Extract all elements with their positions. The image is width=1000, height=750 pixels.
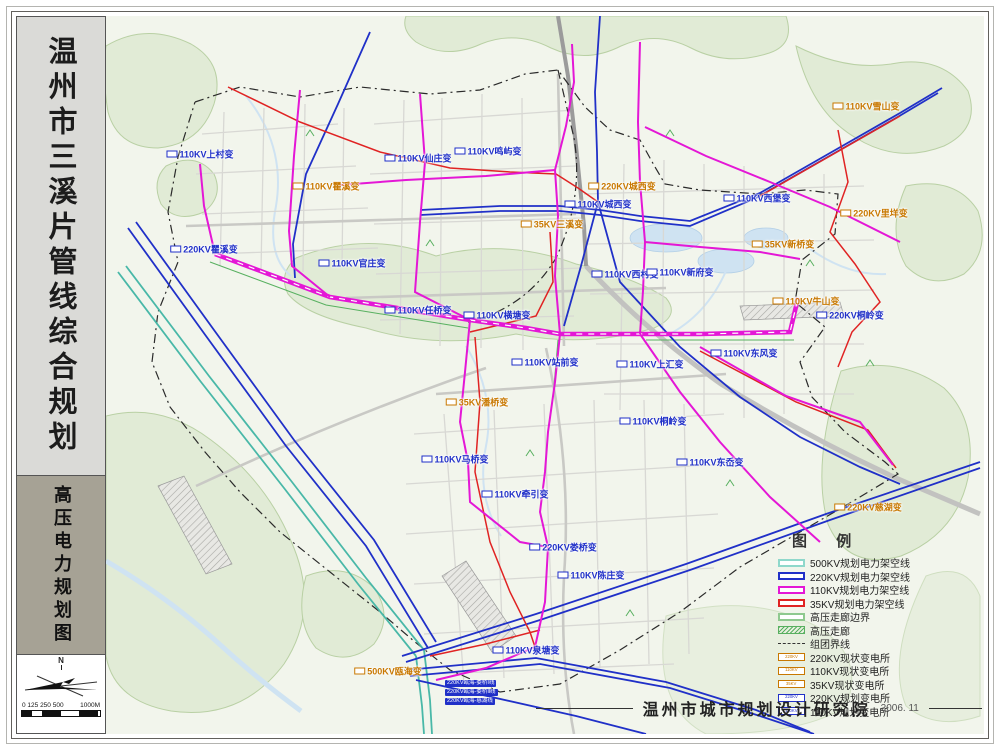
legend-swatch-tag: 110KV [785, 669, 797, 673]
substation-marker-icon [463, 312, 474, 319]
substation-name: 110KV城西变 [577, 198, 631, 211]
legend-item: 组团界线 [778, 637, 974, 651]
attribution-org: 温州市城市规划设计研究院 [643, 696, 871, 720]
substation-name: 110KV西堡变 [736, 192, 790, 205]
substation-name: 110KV鸣屿变 [467, 145, 521, 158]
substation-marker-icon [832, 103, 843, 110]
substation-label: 110KV上村变 [166, 148, 233, 161]
substation-name: 220KV娄桥变 [542, 541, 597, 554]
legend-swatch-icon: 110KV [778, 667, 805, 675]
substation-marker-icon [166, 151, 177, 158]
substation-label: 220KV娄桥变 [529, 541, 597, 554]
substation-marker-icon [710, 350, 721, 357]
substation-name: 110KV站前变 [524, 356, 578, 369]
substation-marker-icon [752, 241, 763, 248]
substation-label: 110KV泉塘变 [492, 644, 559, 657]
substation-label: 35KV三溪变 [521, 218, 584, 231]
legend-swatch-icon [778, 572, 805, 580]
legend-item: 35KV 35KV现状变电所 [778, 678, 974, 692]
scale-end-label: 1000M [80, 702, 100, 709]
substation-name: 110KV泉塘变 [505, 644, 559, 657]
legend-swatch-tag: 35KV [786, 682, 796, 686]
legend-swatch-icon [778, 626, 805, 634]
attribution-rule-left [536, 708, 633, 709]
sheet-subtitle-box: 高压电力规划图 [17, 476, 105, 655]
substation-marker-icon [588, 183, 599, 190]
legend-item: 110KV规划电力架空线 [778, 583, 974, 597]
legend-title: 图 例 [792, 530, 974, 551]
scale-ticks: 0 125 250 500 [22, 702, 64, 709]
sheet-subtitle: 高压电力规划图 [48, 485, 74, 646]
substation-name: 220KV瞿溪变 [183, 243, 238, 256]
legend-swatch-icon [778, 559, 805, 567]
substation-marker-icon [772, 298, 783, 305]
legend-swatch-icon [778, 586, 805, 594]
sheet-title: 温州市三溪片管线综合规划 [40, 36, 82, 456]
substation-marker-icon [529, 544, 540, 551]
substation-name: 110KV东岙变 [689, 456, 743, 469]
substation-label: 220KV桐岭变 [816, 309, 884, 322]
legend-item: 220KV规划电力架空线 [778, 570, 974, 584]
legend-swatch-icon: 220KV [778, 653, 805, 661]
substation-name: 110KV雪山变 [845, 100, 899, 113]
substation-marker-icon [723, 195, 734, 202]
substation-name: 110KV东风变 [723, 347, 777, 360]
substation-marker-icon [616, 361, 627, 368]
legend-swatch-icon [778, 599, 805, 607]
substation-label: 110KV雪山变 [832, 100, 899, 113]
attribution-date: 2006. 11 [881, 703, 919, 714]
substation-label: 110KV新府变 [646, 266, 713, 279]
line-name-tag: 220KV瓯海-娄桥Ⅱ线 [445, 689, 498, 696]
substation-label: 110KV横塘变 [463, 309, 530, 322]
legend-items: 500KV规划电力架空线 220KV规划电力架空线 110KV规划电力架空线 3… [778, 556, 974, 718]
substation-name: 220KV桐岭变 [829, 309, 884, 322]
substation-label: 110KV仙庄变 [384, 152, 451, 165]
map-area: 110KV上村变 110KV仙庄变 110KV瞿溪变 220KV瞿溪变 110K… [106, 16, 984, 734]
substation-label: 35KV潘桥变 [446, 396, 509, 409]
substation-name: 110KV横塘变 [476, 309, 530, 322]
substation-marker-icon [557, 572, 568, 579]
legend-item: 35KV规划电力架空线 [778, 597, 974, 611]
scale-bar-icon [21, 710, 101, 717]
compass-and-scale: N 0 125 250 500 1000M [17, 655, 105, 733]
substation-label: 220KV里垟变 [840, 207, 908, 220]
legend-swatch-icon: 35KV [778, 680, 805, 688]
substation-marker-icon [292, 183, 303, 190]
substation-name: 220KV慈湖变 [847, 501, 902, 514]
attribution: 温州市城市规划设计研究院 2006. 11 [536, 696, 982, 720]
line-name-tag: 220KV瓯海-娄桥Ⅰ线 [445, 680, 496, 687]
substation-label: 35KV新桥变 [752, 238, 815, 251]
substation-marker-icon [384, 155, 395, 162]
substation-marker-icon [676, 459, 687, 466]
substation-marker-icon [840, 210, 851, 217]
substation-marker-icon [318, 260, 329, 267]
substation-label: 110KV东风变 [710, 347, 777, 360]
substation-name: 110KV瞿溪变 [305, 180, 359, 193]
substation-label: 110KV鸣屿变 [454, 145, 521, 158]
substation-label: 110KV上汇变 [616, 358, 683, 371]
substation-marker-icon [492, 647, 503, 654]
legend-swatch-icon [778, 643, 805, 644]
substation-name: 110KV牵引变 [494, 488, 548, 501]
substation-name: 110KV官庄变 [331, 257, 385, 270]
substation-marker-icon [816, 312, 827, 319]
compass-icon [21, 670, 101, 700]
substation-name: 110KV上村变 [179, 148, 233, 161]
legend-item: 110KV 110KV现状变电所 [778, 664, 974, 678]
legend-swatch-icon [778, 613, 805, 621]
legend-item: 高压走廊 [778, 624, 974, 638]
substation-label: 500KV瓯海变 [354, 665, 422, 678]
substation-label: 110KV牵引变 [481, 488, 548, 501]
substation-marker-icon [511, 359, 522, 366]
line-name-tag: 220KV瓯海-慈湖线 [445, 698, 495, 705]
substation-name: 110KV马桥变 [434, 453, 488, 466]
north-label: N [58, 657, 64, 665]
substation-name: 110KV仙庄变 [397, 152, 451, 165]
legend-item: 220KV 220KV现状变电所 [778, 651, 974, 665]
substation-marker-icon [834, 504, 845, 511]
substation-marker-icon [170, 246, 181, 253]
substation-marker-icon [521, 221, 532, 228]
substation-label: 110KV陈庄变 [557, 569, 624, 582]
substation-marker-icon [564, 201, 575, 208]
legend-item: 高压走廊边界 [778, 610, 974, 624]
substation-label: 220KV慈湖变 [834, 501, 902, 514]
legend-item: 500KV规划电力架空线 [778, 556, 974, 570]
substation-name: 110KV桐岭变 [632, 415, 686, 428]
substation-label: 110KV马桥变 [421, 453, 488, 466]
substation-label: 110KV官庄变 [318, 257, 385, 270]
substation-name: 110KV新府变 [659, 266, 713, 279]
substation-label: 110KV站前变 [511, 356, 578, 369]
substation-marker-icon [421, 456, 432, 463]
substation-name: 110KV任桥变 [397, 304, 451, 317]
substation-marker-icon [354, 668, 365, 675]
substation-label: 220KV城西变 [588, 180, 656, 193]
substation-label: 110KV瞿溪变 [292, 180, 359, 193]
substation-name: 110KV上汇变 [629, 358, 683, 371]
substation-marker-icon [454, 148, 465, 155]
substation-label: 110KV牛山变 [772, 295, 839, 308]
legend: 图 例 500KV规划电力架空线 220KV规划电力架空线 110KV规划电力架… [778, 530, 974, 718]
title-panel: 温州市三溪片管线综合规划 高压电力规划图 N 0 125 250 500 100… [16, 16, 106, 734]
scale-labels: 0 125 250 500 1000M [22, 702, 100, 709]
plan-sheet: 温州市三溪片管线综合规划 高压电力规划图 N 0 125 250 500 100… [0, 0, 1000, 750]
substation-name: 500KV瓯海变 [367, 665, 422, 678]
substation-marker-icon [446, 399, 457, 406]
substation-name: 35KV新桥变 [765, 238, 815, 251]
sheet-title-box: 温州市三溪片管线综合规划 [17, 17, 105, 476]
substation-label: 110KV桐岭变 [619, 415, 686, 428]
substation-marker-icon [481, 491, 492, 498]
substation-name: 35KV三溪变 [534, 218, 584, 231]
substation-marker-icon [646, 269, 657, 276]
legend-swatch-tag: 220KV [785, 655, 798, 659]
substation-name: 110KV陈庄变 [570, 569, 624, 582]
substation-name: 35KV潘桥变 [459, 396, 509, 409]
substation-label: 220KV瞿溪变 [170, 243, 238, 256]
substation-name: 110KV牛山变 [785, 295, 839, 308]
substation-name: 220KV城西变 [601, 180, 656, 193]
substation-name: 220KV里垟变 [853, 207, 908, 220]
substation-label: 110KV东岙变 [676, 456, 743, 469]
attribution-rule-right [929, 708, 982, 709]
substation-label: 110KV西堡变 [723, 192, 790, 205]
substation-marker-icon [591, 271, 602, 278]
substation-marker-icon [384, 307, 395, 314]
substation-label: 110KV城西变 [564, 198, 631, 211]
substation-label: 110KV任桥变 [384, 304, 451, 317]
substation-marker-icon [619, 418, 630, 425]
